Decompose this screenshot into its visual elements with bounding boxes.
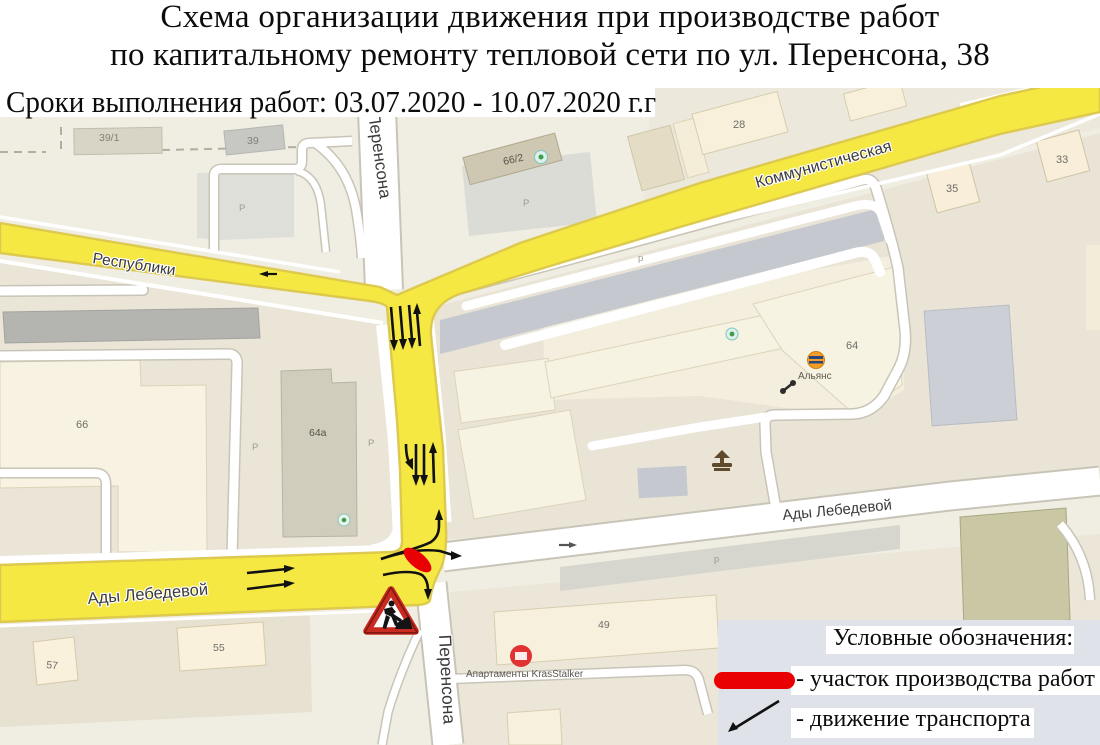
svg-text:35: 35 [946, 183, 958, 195]
svg-text:55: 55 [213, 642, 225, 654]
svg-text:64: 64 [846, 340, 858, 352]
svg-text:Р: Р [368, 438, 374, 449]
svg-text:66: 66 [76, 419, 88, 431]
svg-text:Альянс: Альянс [798, 371, 832, 382]
svg-text:Р: Р [523, 198, 529, 209]
svg-text:28: 28 [733, 119, 745, 131]
svg-text:р: р [638, 253, 643, 264]
svg-text:49: 49 [598, 619, 610, 631]
svg-text:Р: Р [252, 442, 258, 453]
svg-text:р: р [714, 554, 719, 565]
svg-text:57: 57 [46, 659, 59, 672]
svg-text:33: 33 [1056, 154, 1068, 166]
svg-text:Апартаменты KrasStalker: Апартаменты KrasStalker [466, 669, 584, 680]
svg-text:Р: Р [239, 203, 245, 214]
svg-text:64а: 64а [309, 427, 327, 439]
svg-text:39/1: 39/1 [99, 132, 120, 144]
svg-text:39: 39 [247, 135, 259, 147]
